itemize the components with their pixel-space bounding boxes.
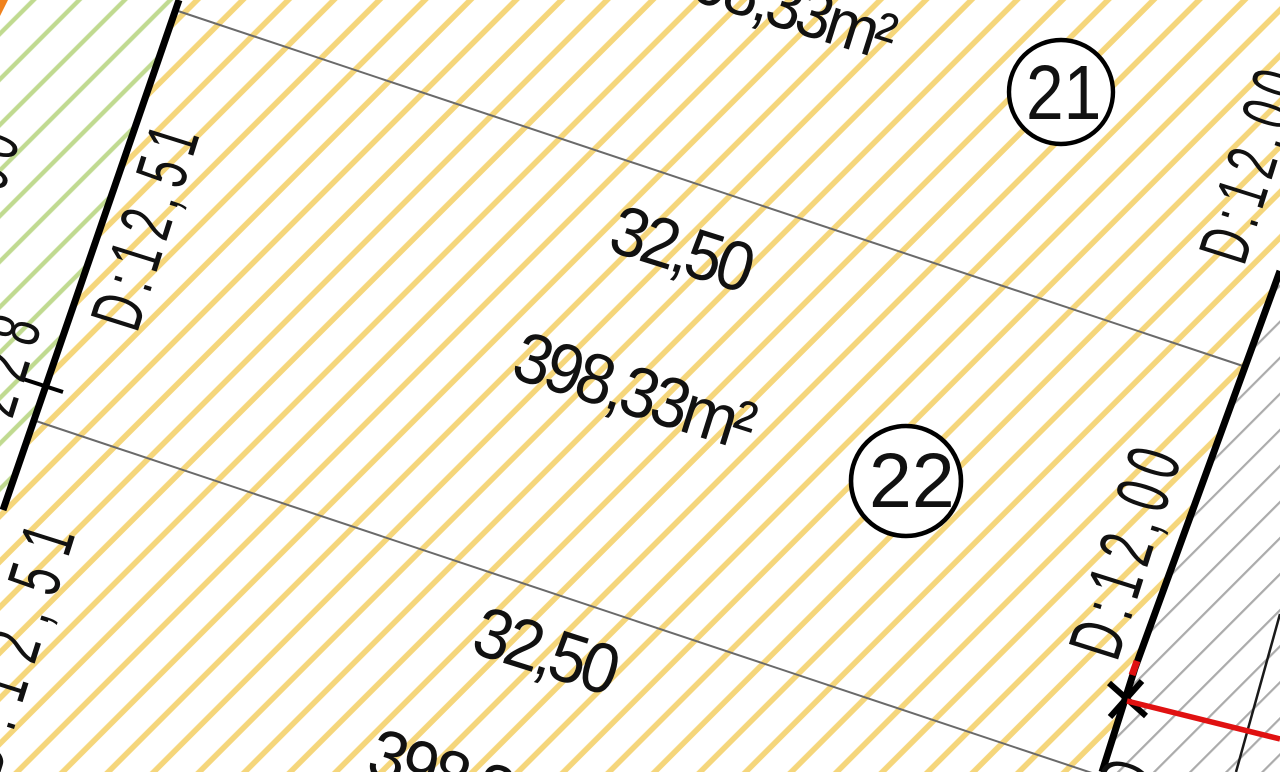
svg-text:21: 21 (1026, 50, 1101, 136)
svg-text:22: 22 (869, 438, 955, 524)
